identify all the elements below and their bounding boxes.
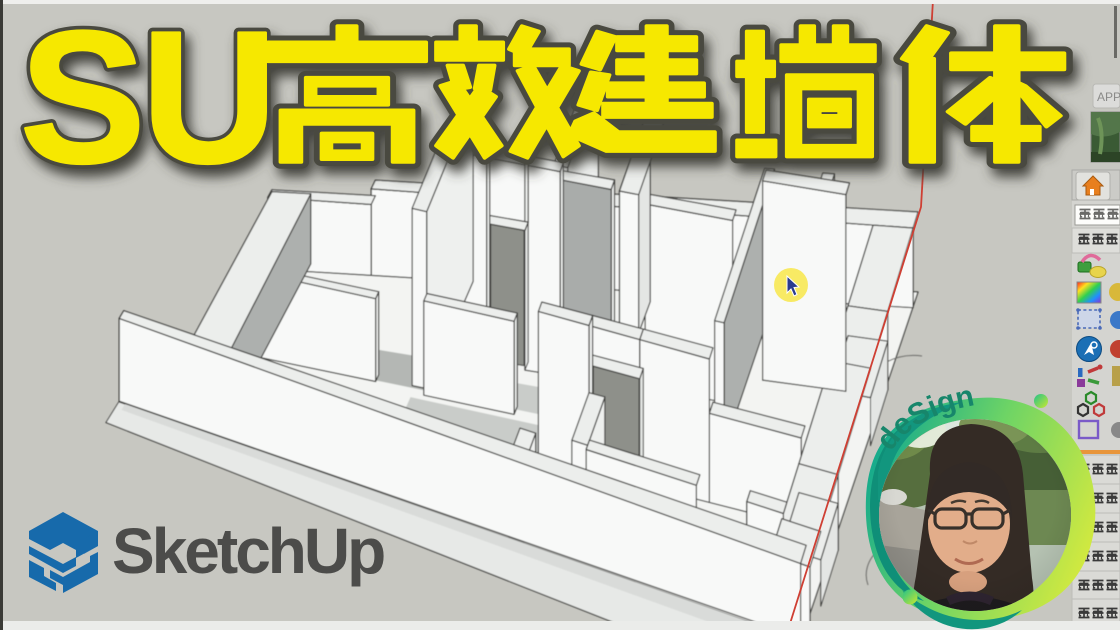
svg-text:SU: SU [20,0,273,202]
svg-text:SketchUp: SketchUp [112,515,384,587]
svg-text:APP: APP [1097,90,1120,104]
